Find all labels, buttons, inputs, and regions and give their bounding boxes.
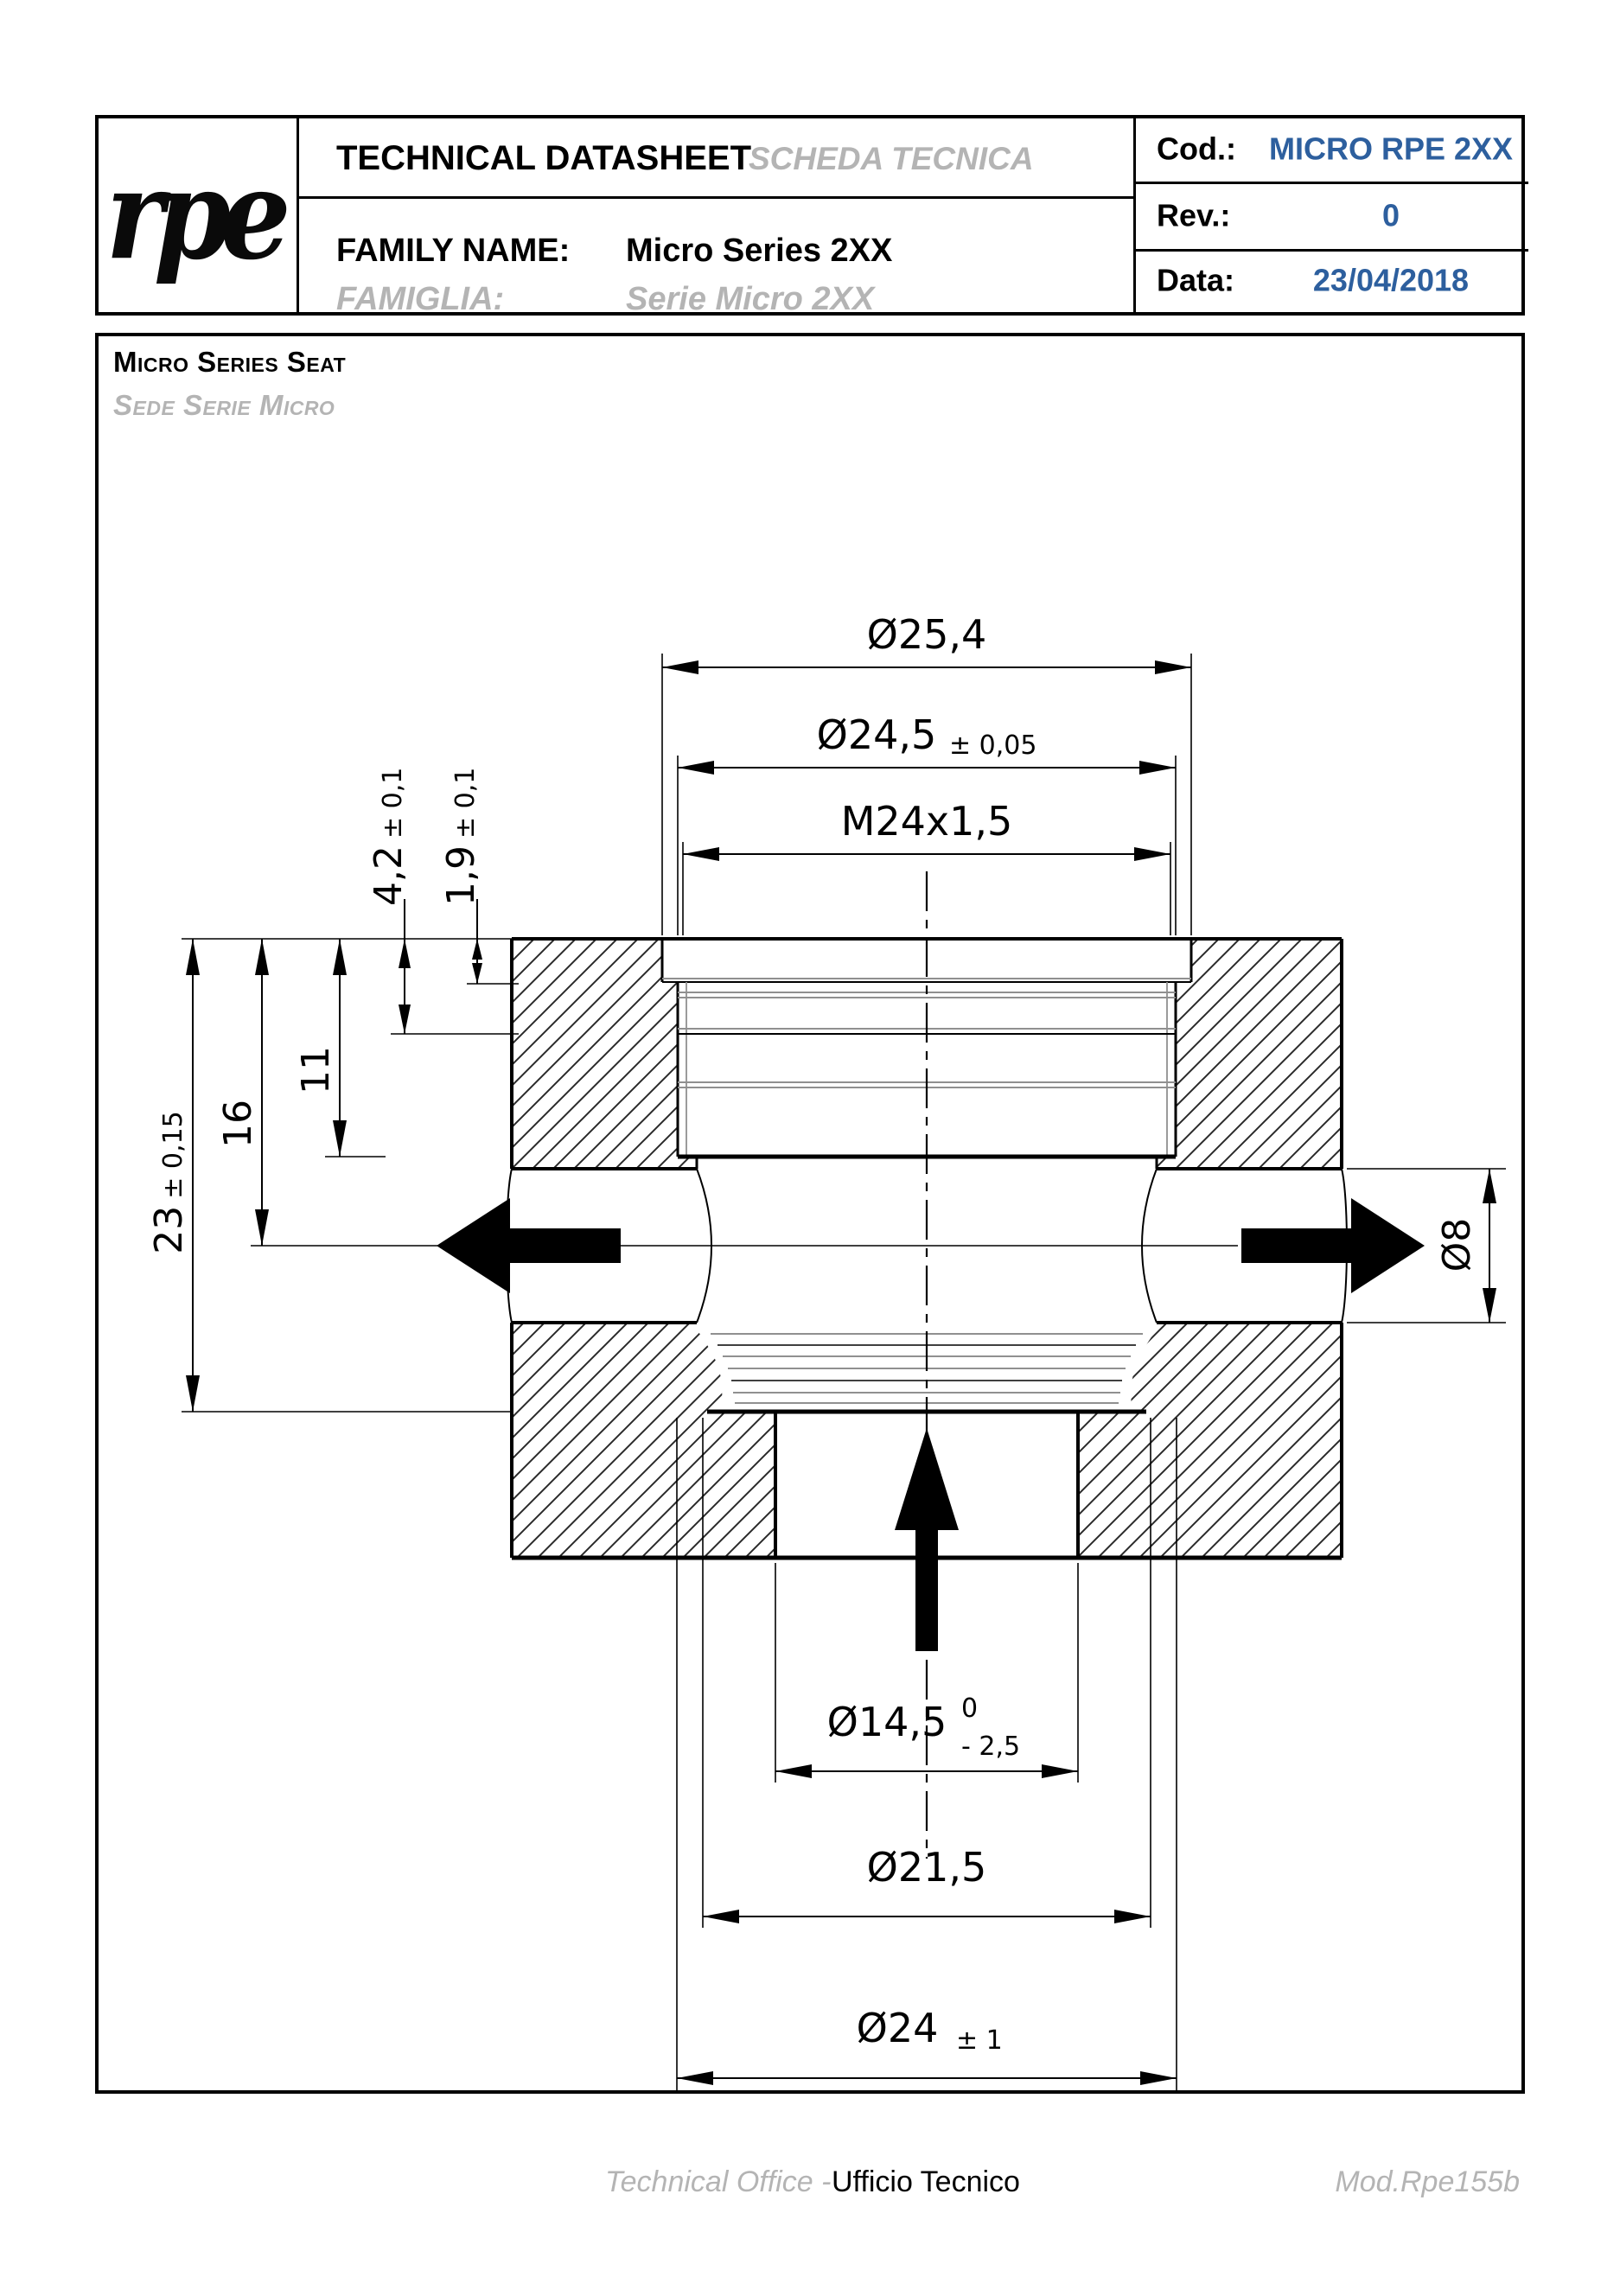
cod-value: MICRO RPE 2XX xyxy=(1266,131,1516,167)
cod-row: Cod.: MICRO RPE 2XX xyxy=(1136,118,1528,184)
cod-label: Cod.: xyxy=(1157,131,1236,167)
rev-row: Rev.: 0 xyxy=(1136,184,1528,252)
company-logo: rpe xyxy=(99,118,299,312)
sheet-title-en: Micro Series Seat xyxy=(113,346,346,379)
date-row: Data: 23/04/2018 xyxy=(1136,252,1528,312)
doc-title-en: TECHNICAL DATASHEET xyxy=(336,139,751,178)
doc-title-it: SCHEDA TECNICA xyxy=(749,141,1034,177)
page-footer: Technical Office - Ufficio Tecnico Mod.R… xyxy=(0,2165,1620,2209)
drawing-frame xyxy=(95,333,1525,2094)
header-title-row: TECHNICAL DATASHEET SCHEDA TECNICA xyxy=(299,118,1133,199)
rev-label: Rev.: xyxy=(1157,197,1230,233)
header-middle-cell: TECHNICAL DATASHEET SCHEDA TECNICA FAMIL… xyxy=(299,118,1136,312)
header-right-cell: Cod.: MICRO RPE 2XX Rev.: 0 Data: 23/04/… xyxy=(1136,118,1528,312)
date-label: Data: xyxy=(1157,262,1234,298)
rpe-logo-icon: rpe xyxy=(105,143,289,288)
footer-office-it: Ufficio Tecnico xyxy=(832,2165,1020,2199)
header-title-block: rpe TECHNICAL DATASHEET SCHEDA TECNICA F… xyxy=(95,115,1525,316)
rev-value: 0 xyxy=(1266,197,1516,233)
footer-mod-ref: Mod.Rpe155b xyxy=(1335,2165,1520,2199)
datasheet-page: rpe TECHNICAL DATASHEET SCHEDA TECNICA F… xyxy=(0,0,1620,2296)
date-value: 23/04/2018 xyxy=(1266,262,1516,298)
famiglia-label: FAMIGLIA: xyxy=(336,281,504,318)
famiglia-value: Serie Micro 2XX xyxy=(626,281,874,318)
sheet-title-it: Sede Serie Micro xyxy=(113,389,335,422)
family-name-label: FAMILY NAME: xyxy=(336,233,570,270)
footer-office-en: Technical Office - xyxy=(605,2165,831,2199)
family-name-value: Micro Series 2XX xyxy=(626,233,892,270)
